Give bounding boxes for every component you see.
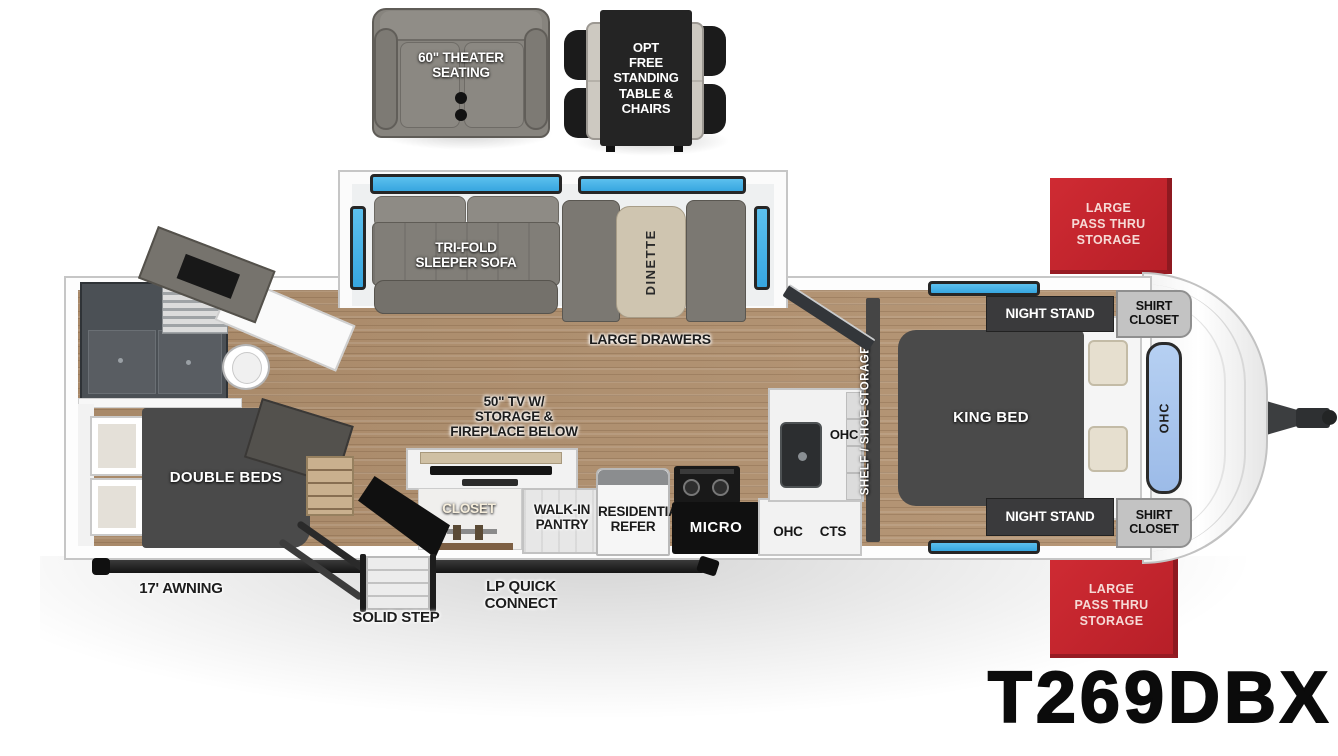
pantry-label: WALK-IN PANTRY (524, 502, 600, 532)
dinette-bench (686, 200, 746, 322)
cubby-inset (98, 486, 136, 528)
window (928, 281, 1040, 296)
shirt-closet-bottom-label: SHIRT CLOSET (1129, 509, 1179, 537)
front-cap-ohc: OHC (1146, 342, 1182, 494)
shirt-closet-top-label: SHIRT CLOSET (1129, 300, 1179, 328)
residential-refer: RESIDENTIAL REFER (596, 468, 670, 556)
night-stand-bottom: NIGHT STAND (986, 498, 1114, 536)
pillow (1088, 340, 1128, 386)
awning-end-cap (92, 558, 110, 575)
sofa-front-roll (374, 280, 558, 314)
ohc-lower-label: OHC (766, 524, 810, 539)
shower-knob-icon (118, 358, 123, 363)
dinette-label: DINETTE (644, 229, 659, 295)
pass-thru-storage-bottom: LARGE PASS THRU STORAGE (1050, 556, 1178, 658)
awning-label: 17' AWNING (118, 581, 244, 598)
king-bed-label: KING BED (953, 410, 1029, 427)
micro-label: MICRO (690, 520, 743, 537)
tri-fold-sleeper-sofa: TRI-FOLD SLEEPER SOFA (372, 196, 560, 314)
theater-seating-label: 60" THEATER SEATING (372, 50, 550, 80)
toilet-seat (232, 352, 262, 384)
tv-console (406, 448, 578, 490)
refer-top (598, 470, 668, 485)
console-top (420, 452, 562, 464)
fireplace-icon (462, 479, 518, 486)
burner-icon (683, 479, 700, 496)
cts-label: CTS (812, 524, 854, 539)
window (350, 206, 366, 290)
pass-thru-storage-bottom-label: LARGE PASS THRU STORAGE (1074, 581, 1148, 630)
hanger-icon (453, 525, 461, 540)
tv-screen-icon (177, 254, 240, 299)
cooktop-controls (680, 469, 734, 474)
model-number: T269DBX (920, 662, 1332, 734)
lp-quick-connect-label: LP QUICK CONNECT (448, 579, 594, 613)
floorplan-canvas: 60" THEATER SEATING OPT FREE STANDING TA… (0, 0, 1338, 756)
shower-knob-icon (186, 360, 191, 365)
interior-wall (78, 398, 242, 408)
shirt-closet-bottom: SHIRT CLOSET (1116, 498, 1192, 548)
solid-step-label: SOLID STEP (334, 610, 458, 627)
pass-thru-storage-top-label: LARGE PASS THRU STORAGE (1071, 200, 1145, 249)
hanger-icon (475, 525, 483, 540)
theater-seating-option: 60" THEATER SEATING (372, 8, 550, 138)
bed-steps (306, 456, 354, 516)
shirt-closet-top: SHIRT CLOSET (1116, 290, 1192, 338)
cubby-inset (98, 424, 136, 468)
step-side-rail (360, 554, 366, 612)
bed-cubby (90, 416, 144, 476)
kitchen-sink (780, 422, 822, 488)
closet-mat (437, 543, 513, 550)
large-drawers-label: LARGE DRAWERS (560, 332, 740, 348)
pass-thru-storage-top: LARGE PASS THRU STORAGE (1050, 178, 1172, 274)
king-bed: KING BED (898, 330, 1084, 506)
window (928, 540, 1040, 554)
dinette-table: DINETTE (616, 206, 686, 318)
ohc-front-label: OHC (1157, 403, 1171, 434)
pillow (1088, 426, 1128, 472)
night-stand-top: NIGHT STAND (986, 296, 1114, 332)
double-beds-label: DOUBLE BEDS (170, 470, 282, 487)
window (370, 174, 562, 194)
night-stand-bottom-label: NIGHT STAND (1005, 509, 1094, 524)
night-stand-top-label: NIGHT STAND (1005, 306, 1094, 321)
shelf-shoe-label: SHELF / SHOE STORAGE (860, 345, 873, 495)
free-standing-table-label: OPT FREE STANDING TABLE & CHAIRS (613, 40, 678, 117)
solid-step-box (366, 556, 430, 610)
window (754, 206, 770, 290)
faucet-icon (798, 452, 807, 461)
dinette-bench (562, 200, 620, 322)
walk-in-pantry: WALK-IN PANTRY (522, 488, 602, 554)
microwave: MICRO (672, 502, 760, 554)
bed-cubby (90, 478, 144, 536)
free-standing-table-option: OPT FREE STANDING TABLE & CHAIRS (562, 4, 728, 152)
cupholder-icon (455, 92, 467, 104)
tv-fireplace-label: 50" TV W/ STORAGE & FIREPLACE BELOW (438, 394, 590, 439)
window (578, 176, 746, 194)
refer-label: RESIDENTIAL REFER (598, 504, 668, 534)
theater-seat-back (380, 11, 542, 41)
hitch-ball-icon (1322, 410, 1337, 425)
burner-icon (712, 479, 729, 496)
closet-label: CLOSET (423, 501, 515, 516)
tv-50in-icon (430, 466, 552, 475)
cupholder-icon (455, 109, 467, 121)
step-side-rail (430, 554, 436, 612)
table-option-board: OPT FREE STANDING TABLE & CHAIRS (600, 10, 692, 146)
sofa-label: TRI-FOLD SLEEPER SOFA (372, 240, 560, 270)
cooktop (674, 466, 740, 504)
